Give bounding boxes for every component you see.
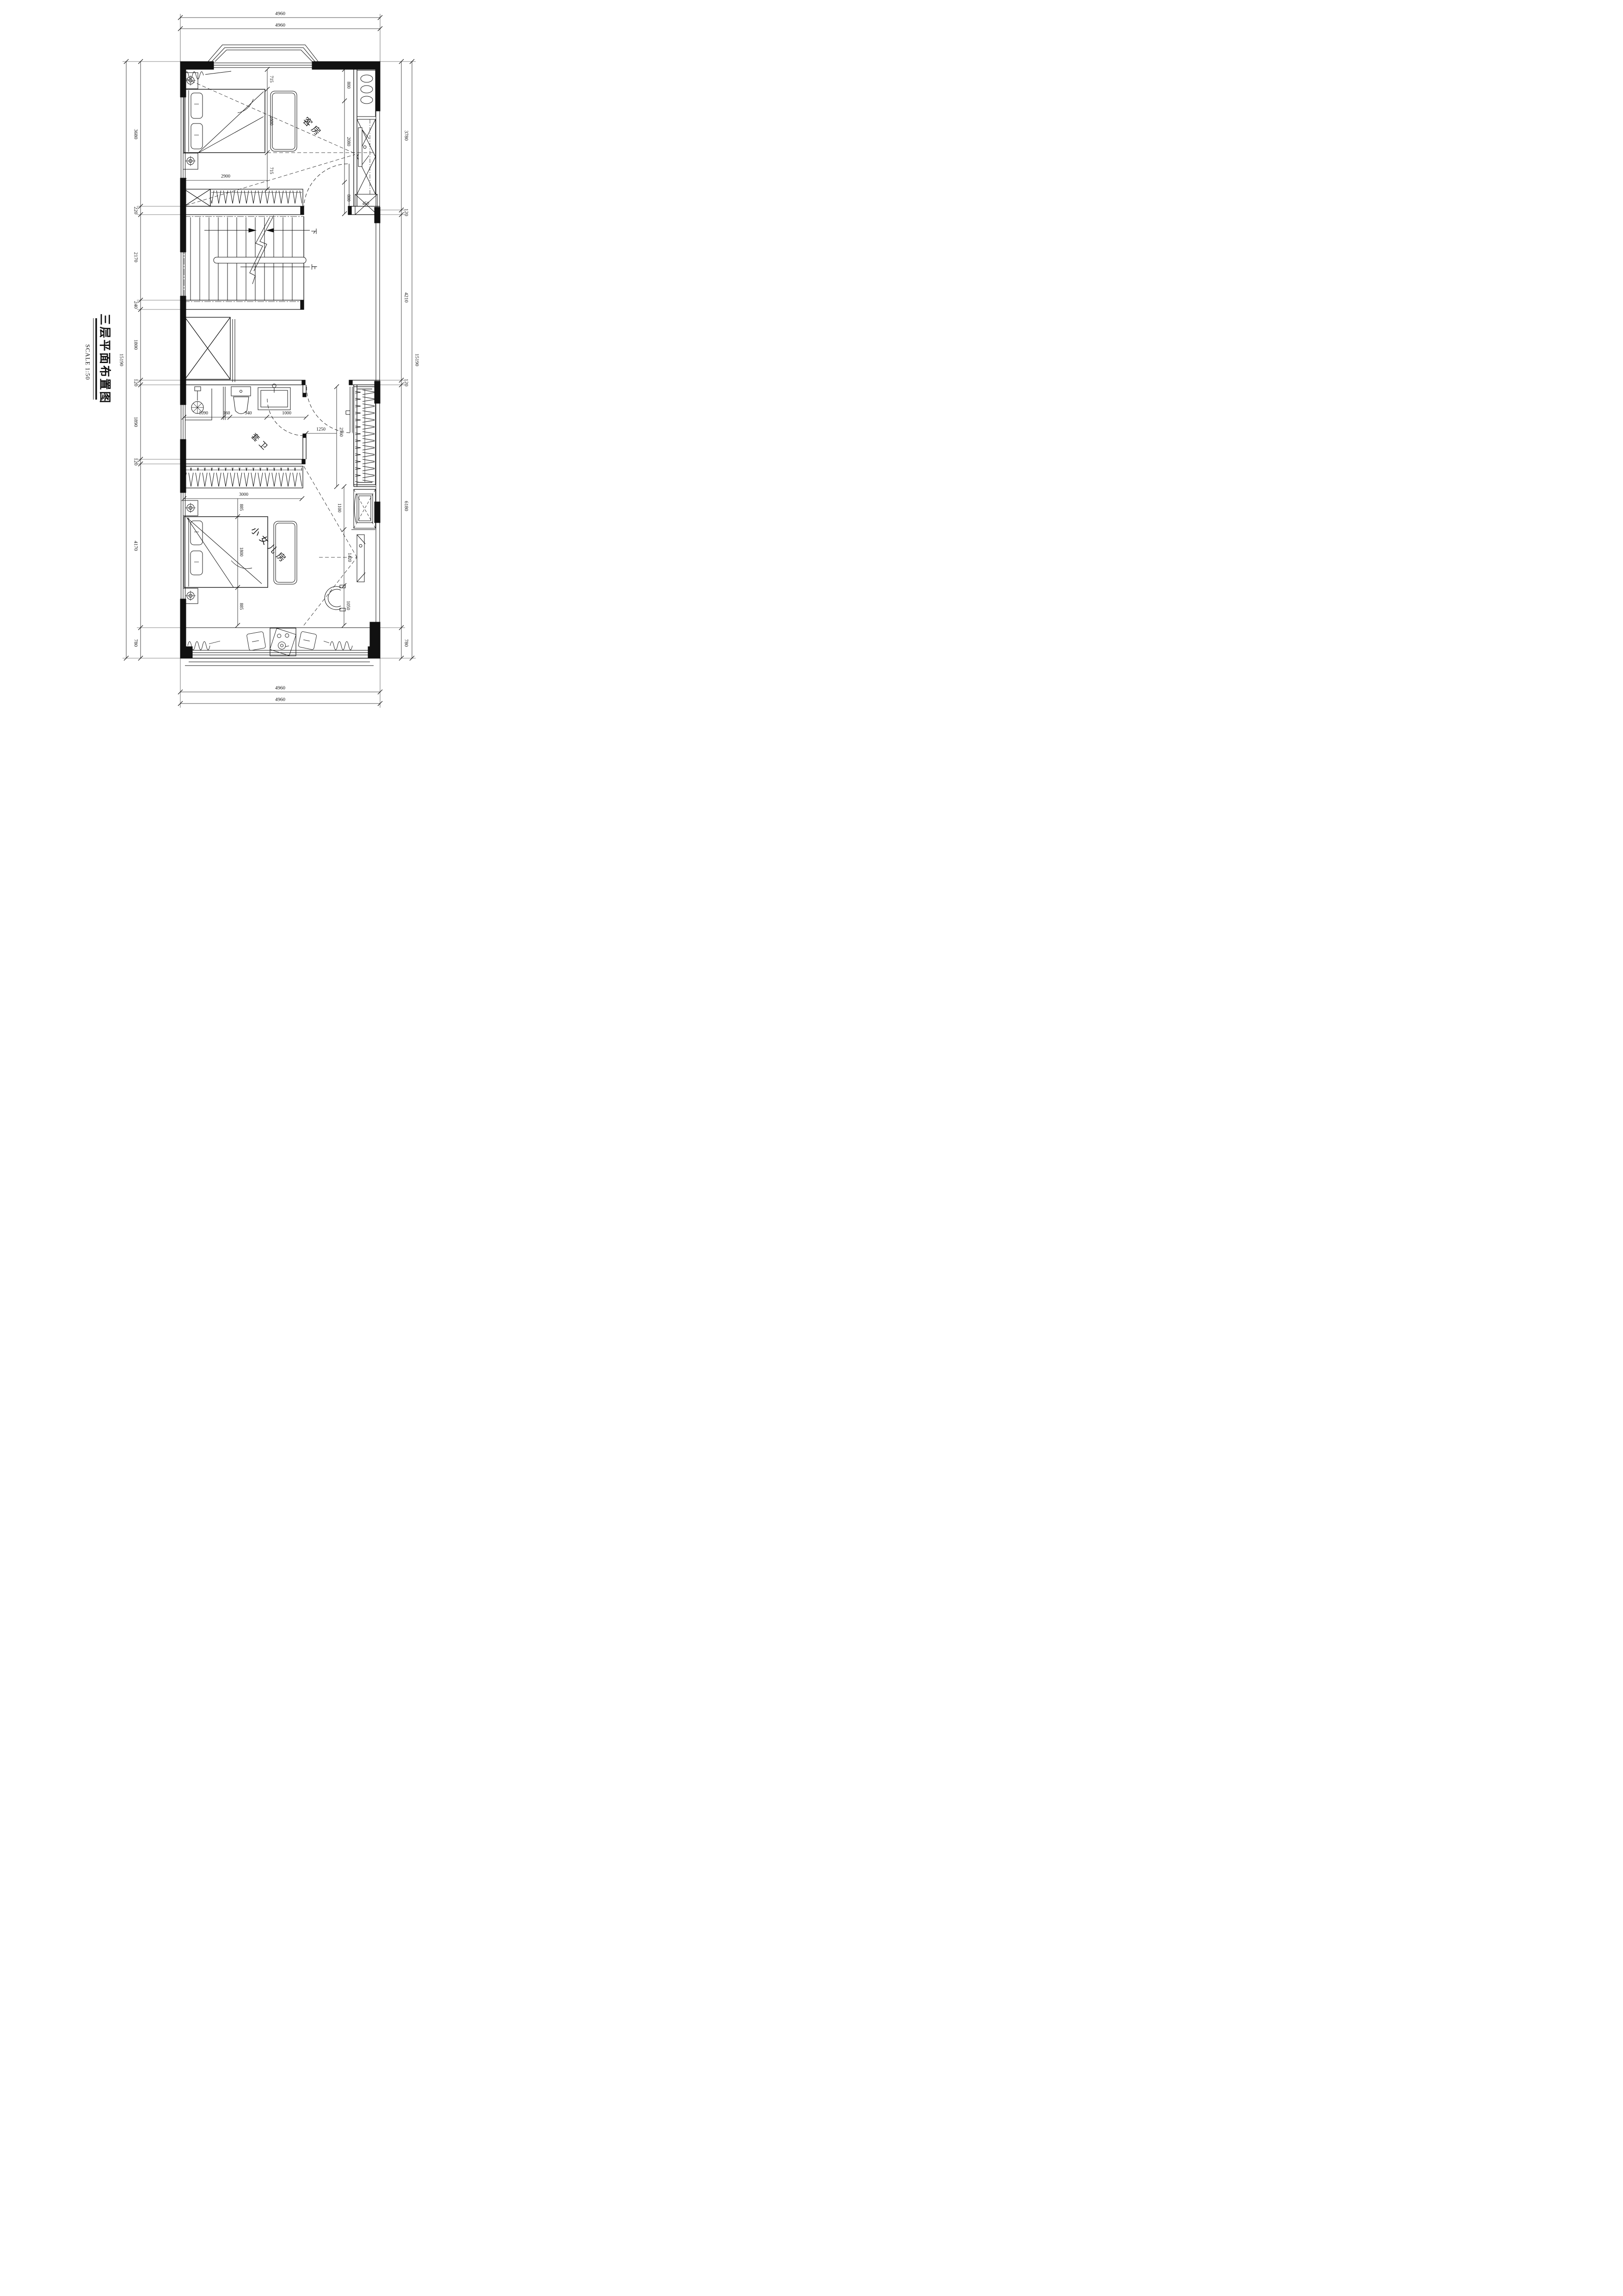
dim-right-5: 780 bbox=[404, 639, 409, 647]
guest-bed bbox=[184, 89, 265, 153]
hall-door bbox=[307, 387, 353, 433]
elevator-shaft bbox=[185, 317, 235, 382]
drawing-title: 三层平面布置图 bbox=[99, 314, 111, 404]
stair-up-label: 上 bbox=[311, 264, 317, 270]
guest-bench bbox=[270, 91, 297, 151]
hall-wardrobe bbox=[354, 387, 375, 485]
girl-desk bbox=[357, 535, 365, 582]
dim-bath-0: 1090 bbox=[199, 411, 208, 416]
dim-bath-1: 160 bbox=[223, 411, 230, 416]
dim-closet-0: 800 bbox=[346, 82, 350, 89]
dim-right-4: 6180 bbox=[404, 501, 409, 511]
dim-guest-wardrobe: 2900 bbox=[221, 174, 230, 179]
guest-wardrobe bbox=[184, 189, 303, 206]
dim-left-2: 2170 bbox=[133, 252, 138, 262]
dim-hall-door: 1250 bbox=[316, 427, 326, 432]
dim-left-4: 1800 bbox=[133, 339, 138, 350]
dim-closet-1: 2080 bbox=[346, 137, 350, 146]
dim-guest-bed-top: 715 bbox=[269, 76, 273, 83]
dim-bath-3: 1000 bbox=[282, 411, 291, 416]
dim-guest-bed-bottom: 715 bbox=[269, 167, 273, 174]
dim-right-3: 120 bbox=[404, 379, 409, 387]
dim-left-7: 120 bbox=[133, 458, 138, 466]
dim-bath-2: 940 bbox=[245, 411, 252, 416]
dim-right-2: 4210 bbox=[404, 292, 409, 302]
guest-closet-cabinet bbox=[355, 70, 377, 215]
dim-girl-window: 1420 bbox=[347, 553, 351, 562]
dim-left-0: 3680 bbox=[133, 129, 138, 139]
dim-left-5: 120 bbox=[133, 379, 138, 387]
dim-closet-depth: 450 bbox=[363, 202, 369, 206]
girl-wardrobe bbox=[184, 466, 303, 488]
dim-girl-foot: 885 bbox=[239, 603, 243, 610]
bathroom-fixtures bbox=[185, 384, 304, 436]
dim-top-inner: 4960 bbox=[275, 23, 285, 28]
dim-right-0: 3780 bbox=[404, 130, 409, 141]
dim-guest-bed: 1600 bbox=[269, 116, 273, 125]
girl-vanity-cabinet bbox=[354, 489, 375, 528]
dim-girl-cabinet: 1100 bbox=[337, 503, 341, 512]
staircase bbox=[184, 216, 310, 302]
title-rule bbox=[93, 318, 96, 400]
drawing-scale: SCALE 1:50 bbox=[85, 344, 91, 380]
dim-left-total: 15190 bbox=[119, 353, 124, 366]
dim-left-9: 780 bbox=[133, 639, 138, 647]
floorplan-page: 4960 4960 4960 4960 3680 220 2170 240 18… bbox=[0, 0, 509, 720]
dim-top-outer: 4960 bbox=[275, 12, 285, 17]
bay-window-seat bbox=[188, 628, 352, 656]
dim-bottom-outer: 4960 bbox=[275, 697, 285, 703]
floorplan-linework bbox=[0, 0, 509, 720]
guest-door bbox=[304, 164, 349, 209]
interior-walls bbox=[180, 69, 380, 628]
dim-hall-wardrobe: 2560 bbox=[338, 427, 343, 437]
dim-closet-2: 800 bbox=[346, 195, 350, 202]
dim-right-1: 120 bbox=[404, 209, 409, 216]
dim-girl-head: 885 bbox=[239, 504, 243, 511]
dim-bottom-inner: 4960 bbox=[275, 686, 285, 691]
dim-right-total: 15190 bbox=[414, 353, 419, 366]
dim-left-3: 240 bbox=[133, 301, 138, 309]
girl-chair bbox=[325, 585, 345, 611]
dim-girl-wardrobe: 3000 bbox=[239, 493, 248, 497]
dim-girl-bed: 1800 bbox=[239, 547, 243, 556]
dim-left-6: 1890 bbox=[133, 417, 138, 427]
dim-left-1: 220 bbox=[133, 207, 138, 215]
dim-left-8: 4170 bbox=[133, 541, 138, 551]
stair-down-label: 下 bbox=[311, 228, 317, 234]
dim-girl-chair: 1050 bbox=[345, 601, 350, 610]
